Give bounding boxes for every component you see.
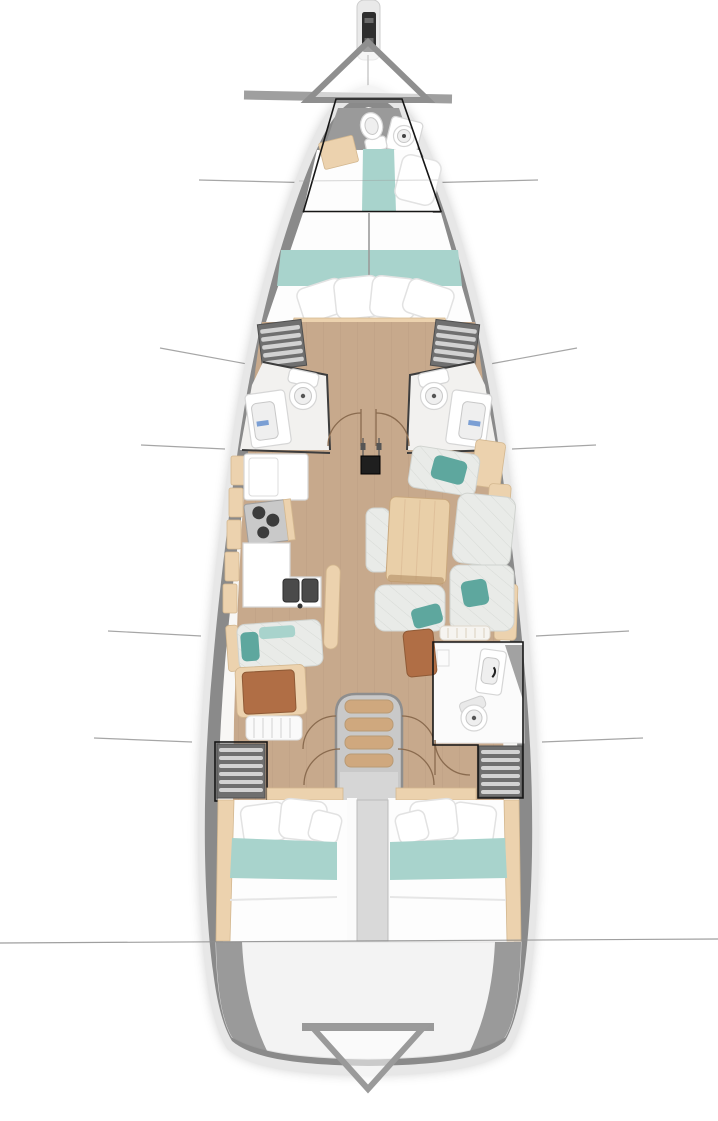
sink-bowl xyxy=(283,579,299,602)
port-aft-cabin xyxy=(216,788,347,941)
toilet-dot xyxy=(432,394,436,398)
basin xyxy=(480,657,499,685)
mast-section-icon xyxy=(361,456,380,474)
galley-handrail xyxy=(324,565,341,649)
sink-bowl xyxy=(302,579,318,602)
settee-seat xyxy=(452,492,517,568)
pillow xyxy=(307,809,343,845)
section-line-chart-port xyxy=(108,631,201,636)
teal-band xyxy=(390,838,507,880)
leather-locker xyxy=(403,629,438,678)
section-line-salon-starboard xyxy=(512,445,596,449)
windlass-detail xyxy=(365,18,374,23)
toilet-dot xyxy=(301,394,305,398)
head-sink xyxy=(245,389,292,448)
pillow xyxy=(394,809,430,845)
head-sink xyxy=(445,389,492,448)
section-line-aft-port xyxy=(94,738,192,742)
stove-icon xyxy=(244,499,296,545)
entry-shelf xyxy=(396,788,476,800)
section-line-bow-port xyxy=(199,180,299,183)
starboard-aft-cabin xyxy=(390,788,521,941)
chart-desk xyxy=(235,664,308,718)
teal-bolster xyxy=(259,625,296,639)
transom-garage xyxy=(216,942,521,1089)
step-tread xyxy=(345,718,393,731)
teal-pillow xyxy=(240,632,260,662)
washer-dot xyxy=(402,134,406,138)
section-line-mid-starboard xyxy=(479,348,577,366)
bow-triangle-icon xyxy=(308,42,428,100)
toilet-dot xyxy=(472,716,476,720)
aft-head-sink xyxy=(475,648,507,695)
fridge-counter xyxy=(244,454,308,500)
steps-platform xyxy=(340,772,398,800)
section-line-mid-port xyxy=(160,348,258,366)
faucet-icon xyxy=(298,604,303,609)
bow-triangle-marker xyxy=(244,42,452,100)
deck-plan-page xyxy=(0,0,718,1121)
cabin-wall-port xyxy=(347,798,357,941)
engine-column xyxy=(357,800,388,941)
turnbuckle-icon xyxy=(377,443,382,450)
aft-locker-port-group xyxy=(215,742,267,801)
step-tread xyxy=(345,736,393,749)
section-line-aft-starboard xyxy=(542,738,643,742)
turnbuckle-icon xyxy=(361,443,366,450)
teal-band xyxy=(230,838,337,880)
section-line-chart-starboard xyxy=(536,631,629,636)
leather-desk-top xyxy=(242,670,296,715)
section-line-bow-starboard xyxy=(438,180,538,183)
dining-table xyxy=(386,496,450,584)
step-tread xyxy=(345,700,393,713)
section-line-salon-port xyxy=(141,445,225,449)
deck-plan-figure xyxy=(0,0,718,1121)
step-tread xyxy=(345,754,393,767)
entry-shelf xyxy=(267,788,343,800)
